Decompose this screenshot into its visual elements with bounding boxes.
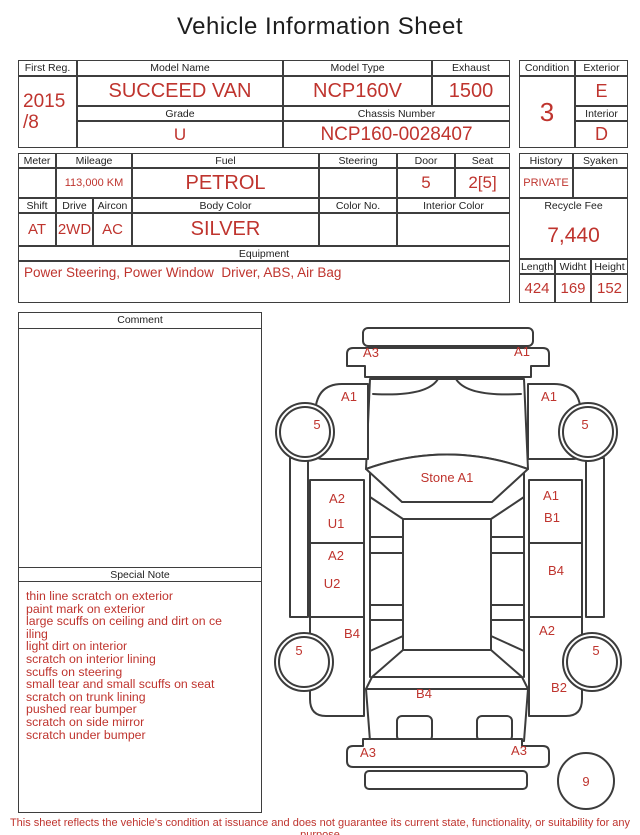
equipment-label: Equipment xyxy=(18,246,510,261)
length-label: Length xyxy=(519,259,555,274)
left-sill-shape xyxy=(290,458,308,617)
diagram-label-left-rear-door-2: U2 xyxy=(324,576,341,591)
special-note-line: scratch under bumper xyxy=(26,729,258,742)
meter-label: Meter xyxy=(18,153,56,168)
exhaust-value: 1500 xyxy=(432,76,510,106)
left-front-window-shape xyxy=(370,497,403,537)
exterior-value: E xyxy=(575,76,628,106)
aircon-value: AC xyxy=(93,213,132,246)
diagram-label-rear-bumper-left: A3 xyxy=(360,745,376,760)
disclaimer-text: This sheet reflects the vehicle's condit… xyxy=(0,817,640,835)
recycle-fee-value: 7,440 xyxy=(519,213,628,259)
right-rear-door-shape xyxy=(529,543,582,617)
syaken-value xyxy=(573,168,628,198)
first-reg-label: First Reg. xyxy=(18,60,77,76)
fuel-value: PETROL xyxy=(132,168,319,198)
right-front-window-shape xyxy=(491,497,524,537)
first-reg-month: /8 xyxy=(23,112,39,133)
condition-label: Condition xyxy=(519,60,575,76)
diagram-label-front-bumper-right: A1 xyxy=(514,344,530,359)
diagram-label-right-front-door-1: A1 xyxy=(543,488,559,503)
comment-label: Comment xyxy=(18,312,262,329)
door-label: Door xyxy=(397,153,455,168)
page-title: Vehicle Information Sheet xyxy=(0,13,640,41)
length-value: 424 xyxy=(519,274,555,303)
width-label: Widht xyxy=(555,259,591,274)
special-note-line: thin line scratch on exterior xyxy=(26,590,258,603)
seat-label: Seat xyxy=(455,153,510,168)
rear-right-wheel-icon xyxy=(563,633,621,691)
diagram-label-windshield: Stone A1 xyxy=(421,470,474,485)
color-no-value xyxy=(319,213,397,246)
color-no-label: Color No. xyxy=(319,198,397,213)
diagram-label-left-rear-door-1: A2 xyxy=(328,548,344,563)
mileage-value: 113,000 KM xyxy=(56,168,132,198)
history-label: History xyxy=(519,153,573,168)
diagram-label-left-front-door-2: U1 xyxy=(328,516,345,531)
width-value: 169 xyxy=(555,274,591,303)
right-mid-window-shape xyxy=(491,553,524,605)
height-label: Height xyxy=(591,259,628,274)
diagram-label-rear-left-wheel: 5 xyxy=(295,643,302,658)
right-quarter-window-shape xyxy=(491,620,524,651)
diagram-label-left-quarter: B4 xyxy=(344,626,360,641)
body-color-value: SILVER xyxy=(132,213,319,246)
body-color-label: Body Color xyxy=(132,198,319,213)
diagram-label-rear-right-wheel: 5 xyxy=(592,643,599,658)
left-quarter-window-shape xyxy=(370,620,403,651)
fuel-label: Fuel xyxy=(132,153,319,168)
seat-value: 2[5] xyxy=(455,168,510,198)
model-name-label: Model Name xyxy=(77,60,283,76)
diagram-label-right-quarter: A2 xyxy=(539,623,555,638)
special-note-line: large scuffs on ceiling and dirt on ce xyxy=(26,615,258,628)
meter-value xyxy=(18,168,56,198)
left-taillight-icon xyxy=(397,716,432,741)
history-value: PRIVATE xyxy=(519,168,573,198)
left-front-door-shape xyxy=(310,480,364,543)
condition-value: 3 xyxy=(519,76,575,148)
recycle-fee-label: Recycle Fee xyxy=(519,198,628,213)
diagram-label-overall-score: 9 xyxy=(582,774,589,789)
diagram-label-rear-bumper-right: A3 xyxy=(511,743,527,758)
exterior-label: Exterior xyxy=(575,60,628,76)
grade-value: U xyxy=(77,121,283,148)
interior-color-label: Interior Color xyxy=(397,198,510,213)
diagram-label-front-bumper-left: A3 xyxy=(363,345,379,360)
shift-label: Shift xyxy=(18,198,56,213)
height-value: 152 xyxy=(591,274,628,303)
door-value: 5 xyxy=(397,168,455,198)
equipment-value: Power Steering, Power Window Driver, ABS… xyxy=(18,261,510,303)
model-name-value: SUCCEED VAN xyxy=(77,76,283,106)
rear-pillar-lines xyxy=(366,677,528,689)
aircon-label: Aircon xyxy=(93,198,132,213)
front-left-wheel-icon xyxy=(276,403,334,461)
diagram-label-right-front-door-2: B1 xyxy=(544,510,560,525)
roof-shape xyxy=(403,519,491,650)
diagram-label-front-right-fender: A1 xyxy=(541,389,557,404)
shift-value: AT xyxy=(18,213,56,246)
interior-label: Interior xyxy=(575,106,628,121)
diagram-label-front-left-wheel: 5 xyxy=(313,417,320,432)
diagram-label-front-right-wheel: 5 xyxy=(581,417,588,432)
diagram-label-right-rear-corner: B2 xyxy=(551,680,567,695)
diagram-label-rear-hatch: B4 xyxy=(416,686,432,701)
diagram-label-left-front-door-1: A2 xyxy=(329,491,345,506)
front-top-strip-shape xyxy=(363,328,533,346)
drive-label: Drive xyxy=(56,198,93,213)
vehicle-information-sheet: Vehicle Information Sheet First Reg. 201… xyxy=(0,0,640,835)
first-reg-value: 2015 /8 xyxy=(18,76,77,148)
steering-label: Steering xyxy=(319,153,397,168)
mileage-label: Mileage xyxy=(56,153,132,168)
first-reg-year: 2015 xyxy=(23,91,65,112)
front-right-wheel-icon xyxy=(559,403,617,461)
model-type-label: Model Type xyxy=(283,60,432,76)
exhaust-label: Exhaust xyxy=(432,60,510,76)
rear-left-wheel-icon xyxy=(275,633,333,691)
special-note-line: scratch on side mirror xyxy=(26,716,258,729)
model-type-value: NCP160V xyxy=(283,76,432,106)
right-sill-shape xyxy=(586,458,604,617)
left-mid-window-shape xyxy=(370,553,403,605)
syaken-label: Syaken xyxy=(573,153,628,168)
special-note-list: thin line scratch on exterior paint mark… xyxy=(26,590,258,741)
right-taillight-icon xyxy=(477,716,512,741)
chassis-number-value: NCP160-0028407 xyxy=(283,121,510,148)
vehicle-damage-diagram: A3 A1 A1 A1 5 5 Stone A1 A2 U1 A1 B1 A2 … xyxy=(268,308,634,820)
drive-value: 2WD xyxy=(56,213,93,246)
rear-bottom-strip-shape xyxy=(365,771,527,789)
interior-color-value xyxy=(397,213,510,246)
chassis-number-label: Chassis Number xyxy=(283,106,510,121)
diagram-label-right-rear-door: B4 xyxy=(548,563,564,578)
special-note-line: scratch on interior lining xyxy=(26,653,258,666)
diagram-label-front-left-fender: A1 xyxy=(341,389,357,404)
special-note-label: Special Note xyxy=(18,567,262,582)
rear-window-shape xyxy=(372,650,522,677)
grade-label: Grade xyxy=(77,106,283,121)
steering-value xyxy=(319,168,397,198)
interior-value: D xyxy=(575,121,628,148)
special-note-line: small tear and small scuffs on seat xyxy=(26,678,258,691)
